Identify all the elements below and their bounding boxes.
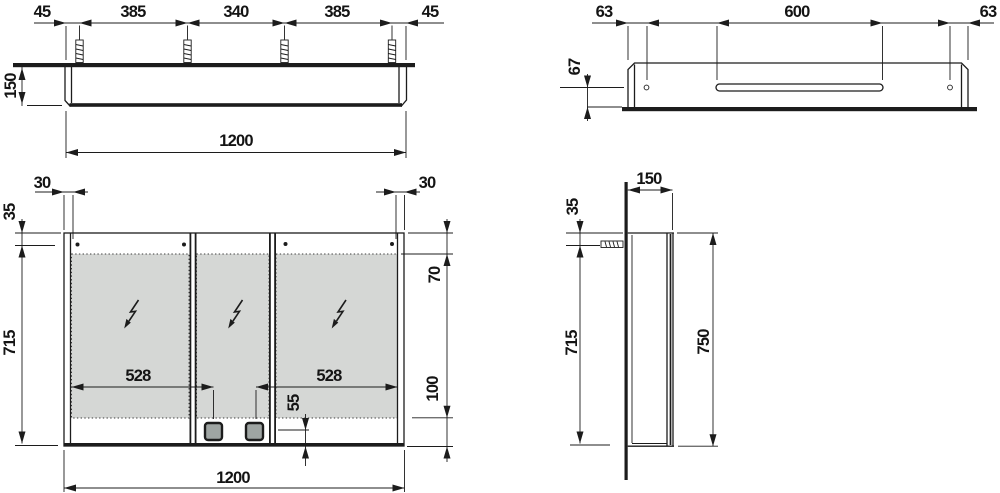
fixing-hole: [284, 242, 288, 246]
cabinet-underside: [628, 63, 968, 107]
dim-label: 35: [1, 203, 19, 220]
mirror-panes: [72, 254, 398, 418]
dim-label: 30: [34, 174, 51, 192]
fixing-hole: [182, 243, 186, 247]
dim-label: 63: [980, 3, 997, 21]
dim-label: 35: [564, 198, 582, 215]
door-divider: [195, 233, 197, 443]
power-socket: [205, 423, 222, 440]
dim-label: 1200: [219, 132, 253, 150]
dimension-lines: [560, 20, 994, 122]
dim-label: 715: [1, 330, 19, 356]
cabinet-body-plan: [65, 67, 407, 107]
dim-label: 715: [563, 330, 581, 356]
mirror-door-edge: [70, 103, 403, 107]
wall-line: [622, 107, 977, 111]
wall-anchor-icons: [76, 26, 396, 63]
dim-label: 750: [695, 329, 713, 355]
dim-label: 1200: [216, 469, 250, 487]
dim-label: 150: [636, 170, 662, 188]
wall-anchor-icon: [601, 241, 623, 248]
power-socket: [246, 423, 263, 440]
technical-drawing-sheet: 45 385 340 385 45 150 1200: [0, 0, 1000, 493]
wall-anchor-icon: [184, 26, 191, 63]
mirror-pane: [197, 254, 270, 418]
mounting-hole: [948, 85, 953, 90]
wall-anchor-icon: [76, 26, 83, 63]
dimension-lines: [566, 187, 718, 447]
front-view: 30 30 35 715 70 100 55 528 528 1200: [1, 174, 453, 492]
fixing-hole: [76, 243, 80, 247]
dim-label: 45: [422, 3, 439, 21]
door-divider: [269, 233, 271, 443]
dim-label: 150: [2, 73, 20, 99]
wall-anchor-icon: [388, 26, 395, 63]
ventilation-slot: [716, 84, 883, 91]
wall-line: [13, 63, 415, 67]
dim-label: 385: [120, 3, 146, 21]
top-view: 45 385 340 385 45 150 1200: [2, 3, 444, 158]
dim-label: 55: [285, 394, 303, 411]
mirror-pane: [276, 254, 398, 418]
wall-line: [625, 182, 628, 480]
side-view: 150 35 715 750: [563, 170, 718, 480]
dim-label: 67: [566, 58, 584, 75]
dim-label: 385: [324, 3, 350, 21]
door-divider: [274, 233, 276, 443]
wall-anchor-icon: [281, 26, 288, 63]
dim-label: 45: [34, 3, 51, 21]
dim-label: 70: [426, 266, 444, 283]
mirror-pane: [72, 254, 190, 418]
dim-label: 340: [223, 3, 249, 21]
dim-label: 30: [419, 174, 436, 192]
mounting-hole: [644, 85, 649, 90]
dim-label: 63: [596, 3, 613, 21]
dim-label: 100: [424, 376, 442, 402]
door-divider: [190, 233, 192, 443]
cabinet-side-profile: [628, 233, 674, 446]
dim-label: 528: [125, 367, 151, 385]
dim-label: 528: [316, 367, 342, 385]
fixing-hole: [390, 242, 394, 246]
mirror-cabinet-dimension-drawing: 45 385 340 385 45 150 1200: [0, 0, 1000, 493]
underside-view: 63 600 63 67: [560, 3, 997, 121]
dim-label: 600: [784, 3, 810, 21]
